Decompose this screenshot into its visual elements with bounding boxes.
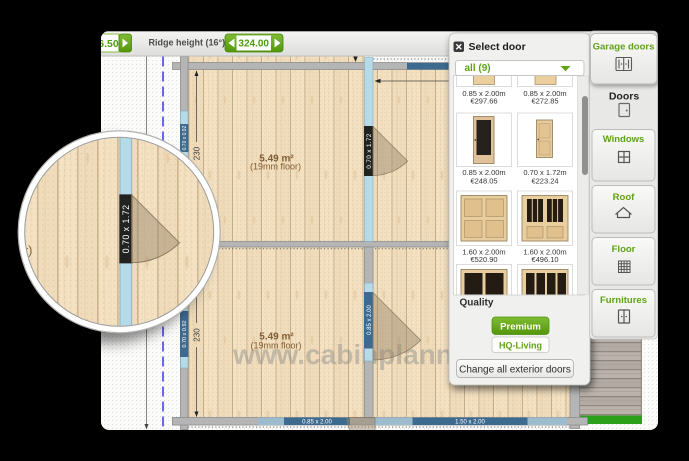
svg-text:€520.90: €520.90 [470, 255, 497, 264]
svg-text:Windows: Windows [603, 134, 645, 145]
svg-text:Floor: Floor [612, 244, 636, 255]
svg-text:Ridge height (16°): Ridge height (16°) [149, 38, 226, 48]
svg-text:€223.24: €223.24 [531, 177, 558, 186]
svg-text:HQ-Living: HQ-Living [499, 341, 542, 351]
svg-text:Premium: Premium [500, 322, 541, 333]
svg-text:Roof: Roof [613, 192, 635, 203]
svg-text:all (9): all (9) [465, 63, 491, 74]
svg-text:€297.66: €297.66 [470, 97, 497, 106]
svg-text:Doors: Doors [609, 91, 639, 103]
svg-text:Garage doors: Garage doors [593, 42, 655, 53]
svg-text:€496.10: €496.10 [531, 255, 558, 264]
svg-text:Quality: Quality [460, 298, 494, 309]
svg-text:Furnitures: Furnitures [600, 295, 647, 306]
svg-text:€248.05: €248.05 [470, 177, 497, 186]
svg-text:Change all exterior doors: Change all exterior doors [459, 365, 571, 376]
svg-text:Select door: Select door [469, 41, 526, 53]
svg-text:6.50: 6.50 [98, 38, 119, 50]
svg-text:324.00: 324.00 [238, 39, 269, 50]
svg-text:€272.85: €272.85 [531, 97, 558, 106]
